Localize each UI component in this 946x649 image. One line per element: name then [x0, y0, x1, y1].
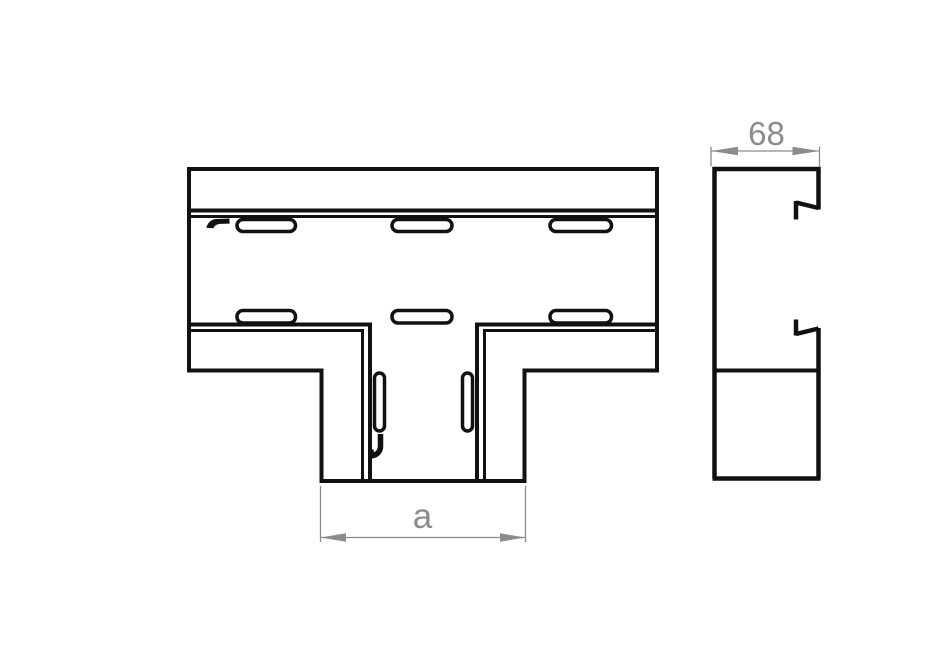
fixing-slot-vertical: [463, 373, 473, 431]
fixing-slot: [392, 311, 452, 324]
fold-line-left-outer: [189, 325, 370, 482]
profile-outline: [715, 169, 819, 479]
lid-hook-bottom: [796, 320, 819, 479]
retention-hook-detail: [371, 434, 381, 456]
arrowhead-right: [500, 533, 526, 541]
dimension-label-a: a: [413, 497, 433, 536]
side-profile-view: [713, 169, 821, 479]
fixing-slot: [237, 220, 296, 232]
technical-drawing: 68 a: [0, 0, 946, 649]
arrowhead-right: [793, 147, 820, 156]
lid-clip-detail: [206, 219, 229, 229]
tee-piece-top-view: [189, 169, 657, 481]
dimension-branch-width: a: [321, 486, 526, 542]
fixing-slot: [392, 220, 452, 232]
fixing-slot: [237, 311, 296, 324]
dimension-label-68: 68: [748, 115, 785, 152]
fold-line-right-inner: [485, 331, 658, 482]
fixing-slot: [550, 311, 612, 324]
fixing-slot-vertical: [375, 373, 385, 431]
fold-line-left-inner: [189, 331, 363, 482]
technical-drawing-svg: 68 a: [0, 0, 946, 649]
fold-line-right-outer: [477, 325, 657, 482]
lid-hook-top: [796, 201, 819, 220]
arrowhead-left: [321, 533, 347, 541]
fixing-slot: [550, 220, 612, 232]
arrowhead-left: [711, 147, 738, 156]
dimension-profile-width: 68: [711, 115, 820, 167]
